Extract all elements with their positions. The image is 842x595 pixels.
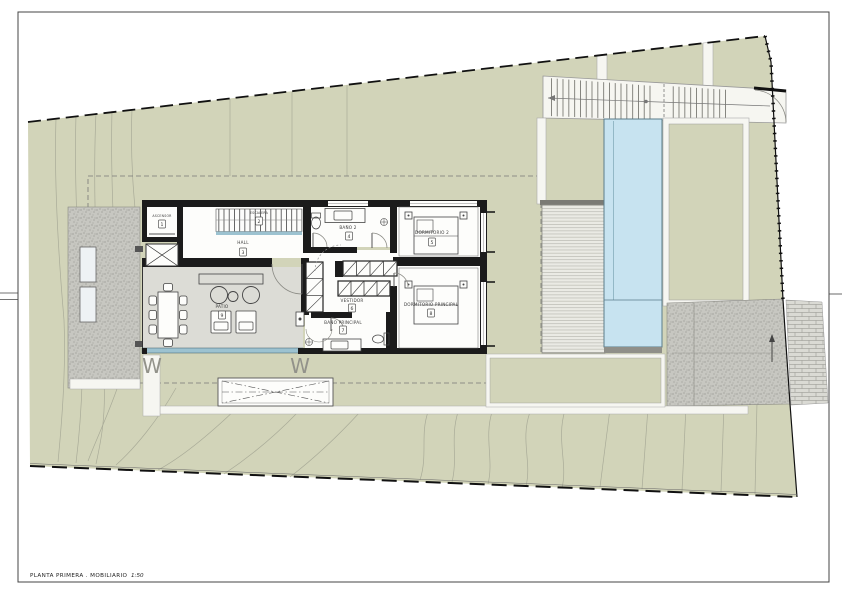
chair — [180, 311, 188, 320]
pool-end-wall — [604, 347, 662, 353]
swimming-pool — [604, 119, 662, 347]
room-label-bano-principal: BAÑO PRINCIPAL — [324, 320, 362, 325]
deck-edge-beam — [540, 200, 608, 205]
svg-text:7: 7 — [342, 328, 345, 334]
room-label-dormitorio-principal: DORMITORIO PRINCIPAL — [404, 302, 459, 307]
room-label-vestidor: VESTIDOR — [341, 298, 364, 303]
wood-deck — [542, 205, 605, 353]
room-badge-ascensor: 1 — [159, 220, 166, 228]
entry-path-strip — [537, 118, 546, 204]
chair — [149, 296, 157, 305]
upper-path-strip-1 — [597, 54, 607, 81]
bath2-sink-counter — [325, 209, 365, 223]
svg-text:2: 2 — [258, 219, 261, 225]
room-label-escalera: ESCALERA — [250, 211, 269, 215]
wall-stub-2 — [135, 341, 143, 347]
svg-text:3: 3 — [242, 250, 245, 256]
floor-plan-page: ASCENSOR 1 ESCALERA 2 HALL 3 — [0, 0, 842, 595]
room-label-ascensor: ASCENSOR — [152, 214, 172, 218]
svg-text:5: 5 — [431, 240, 434, 246]
closet-row-2 — [338, 281, 390, 296]
window-marker-w-2: W — [290, 354, 310, 378]
room-badge-dormitorio2: 5 — [429, 238, 436, 246]
closet-row-1 — [343, 261, 397, 276]
skylight-void — [218, 378, 333, 406]
driveway-gravel — [667, 299, 790, 406]
wall-stub-1 — [135, 246, 143, 252]
svg-text:4: 4 — [348, 234, 351, 240]
brick-sidewalk — [786, 300, 828, 405]
room-badge-escalera: 2 — [256, 217, 263, 225]
gravel-edge-path — [70, 379, 140, 389]
shaft-box — [146, 244, 178, 266]
room-badge-hall: 3 — [240, 248, 247, 256]
stair-glass-edge — [216, 232, 302, 236]
svg-text:9: 9 — [221, 313, 224, 319]
patio-glazing — [142, 348, 303, 353]
chair — [164, 339, 173, 347]
interior-stair: ESCALERA 2 — [216, 209, 302, 235]
skylight-slit-1 — [80, 247, 96, 282]
room-label-patio: PATIO — [216, 304, 229, 309]
closet-column — [306, 262, 323, 312]
chair — [164, 284, 173, 292]
chair — [149, 325, 157, 334]
room-label-bano2: BAÑO 2 — [339, 225, 356, 230]
lawn-patch — [490, 358, 661, 403]
chair — [180, 325, 188, 334]
svg-text:6: 6 — [351, 306, 354, 312]
gravel-patio-left — [68, 207, 143, 389]
upper-path-strip-2 — [703, 42, 713, 86]
elevator: ASCENSOR 1 — [142, 202, 182, 242]
dining-table — [158, 292, 178, 338]
room-badge-patio: 9 — [219, 311, 226, 319]
garden-bed — [669, 124, 743, 300]
sheet-scale: 1:50 — [131, 573, 144, 579]
room-badge-bano2: 4 — [346, 232, 353, 240]
skylight-slit-2 — [80, 287, 96, 322]
house: ASCENSOR 1 ESCALERA 2 HALL 3 — [142, 200, 495, 354]
bed-2 — [414, 217, 458, 254]
room-badge-bano-principal: 7 — [340, 326, 347, 334]
chair — [149, 311, 157, 320]
room-badge-vestidor: 6 — [349, 304, 356, 312]
sheet-title: PLANTA PRIMERA . MOBILIARIO — [30, 573, 128, 579]
room-label-dormitorio2: DORMITORIO 2 — [415, 230, 449, 235]
stair-line-node — [644, 100, 648, 104]
lounge-chair-2 — [236, 311, 256, 333]
room-badge-dormitorio-principal: 8 — [428, 309, 435, 317]
room-label-hall: HALL — [237, 240, 249, 245]
svg-text:1: 1 — [161, 222, 164, 228]
gravel-area-left — [68, 207, 140, 388]
chair — [180, 296, 188, 305]
floor-plan-svg: ASCENSOR 1 ESCALERA 2 HALL 3 — [0, 0, 842, 595]
window-marker-w-1: W — [142, 354, 162, 378]
svg-text:8: 8 — [430, 311, 433, 317]
